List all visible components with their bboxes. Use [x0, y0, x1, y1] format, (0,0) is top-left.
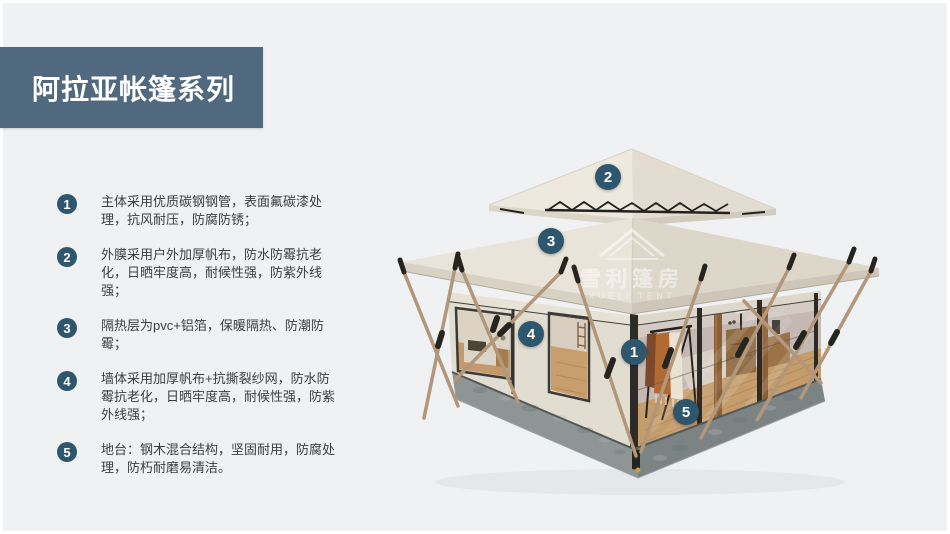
- callout-marker-5-number: 5: [682, 404, 690, 421]
- callout-marker-2: 2: [595, 164, 621, 190]
- callout-marker-4-number: 4: [527, 326, 535, 343]
- callout-marker-3-number: 3: [547, 233, 555, 250]
- anchor-fitting: [636, 468, 641, 473]
- cupola-roof: [489, 149, 776, 226]
- watermark-cn-text: 雪利篷房: [580, 267, 684, 291]
- callout-marker-4: 4: [518, 321, 544, 347]
- slide-canvas: 阿拉亚帐篷系列 1 主体采用优质碳钢钢管，表面氟碳漆处理，抗风耐压，防腐防锈； …: [0, 0, 950, 534]
- watermark-en-text: XUELI TENT: [589, 291, 676, 301]
- callout-marker-1-number: 1: [630, 344, 638, 361]
- tent-render: 雪利篷房 XUELI TENT: [0, 0, 950, 534]
- callout-marker-1: 1: [621, 339, 647, 365]
- callout-marker-3: 3: [538, 228, 564, 254]
- callout-marker-2-number: 2: [604, 169, 612, 186]
- tent-illustration: 雪利篷房 XUELI TENT: [0, 0, 950, 534]
- callout-marker-5: 5: [673, 399, 699, 425]
